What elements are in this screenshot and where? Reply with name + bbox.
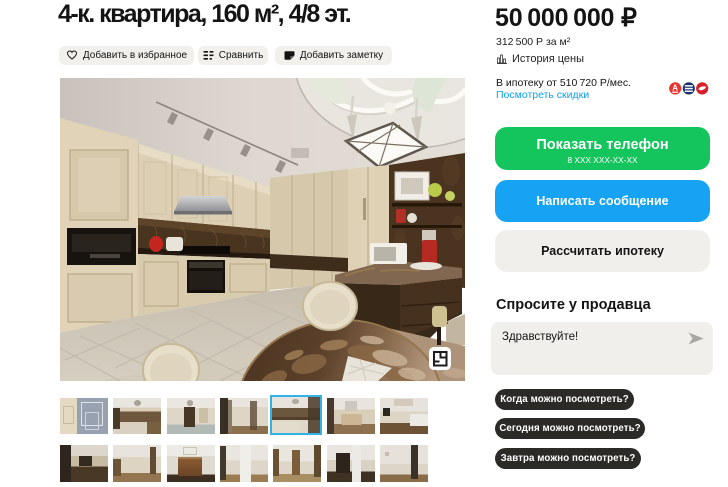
- svg-text:A: A: [672, 83, 678, 92]
